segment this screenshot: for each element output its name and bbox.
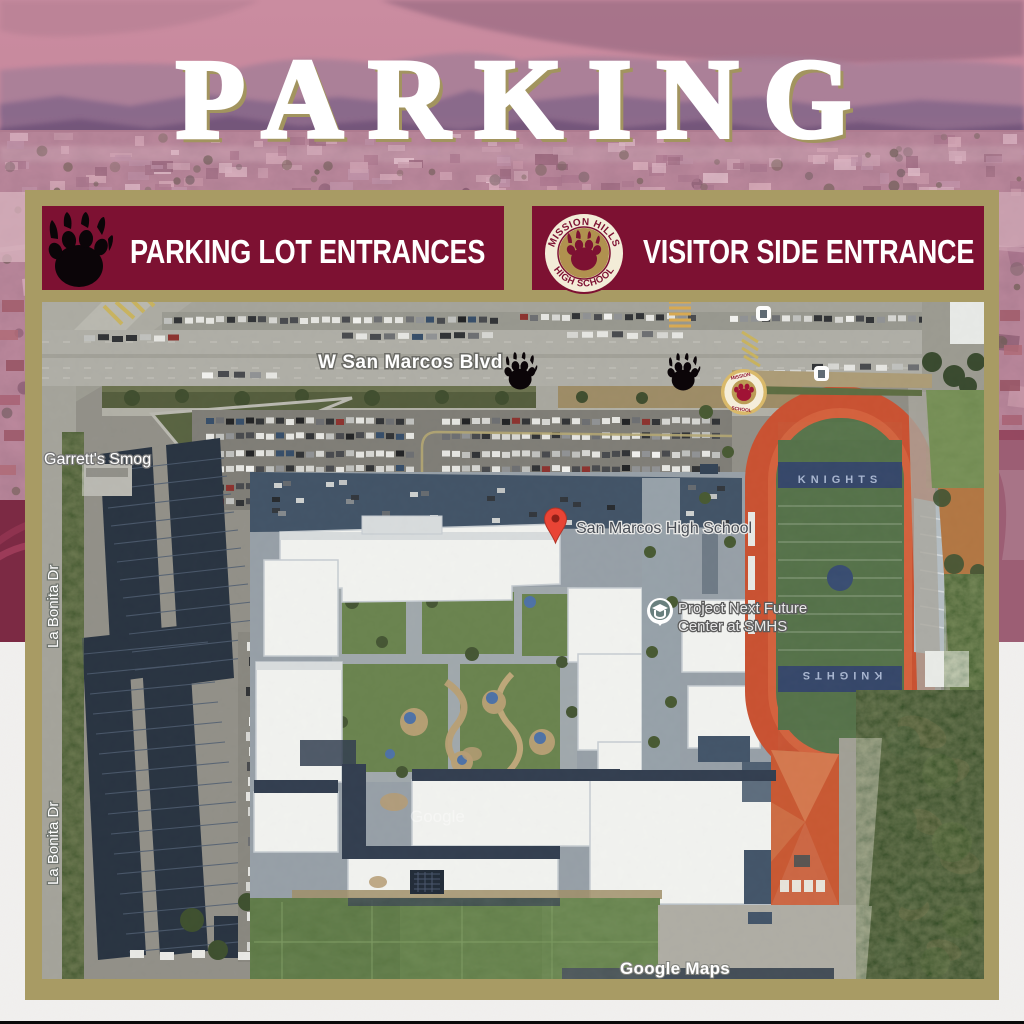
svg-text:San Marcos High School: San Marcos High School: [576, 520, 752, 537]
svg-text:Project Next Future: Project Next Future: [678, 600, 807, 617]
svg-text:Center at SMHS: Center at SMHS: [678, 618, 787, 635]
svg-text:La Bonita Dr: La Bonita Dr: [45, 802, 62, 885]
svg-text:W San Marcos Blvd: W San Marcos Blvd: [318, 352, 503, 373]
svg-text:Garrett's Smog: Garrett's Smog: [44, 451, 151, 468]
svg-text:Google: Google: [410, 807, 465, 826]
svg-text:La Bonita Dr: La Bonita Dr: [45, 565, 62, 648]
svg-text:Google Maps: Google Maps: [620, 959, 730, 978]
